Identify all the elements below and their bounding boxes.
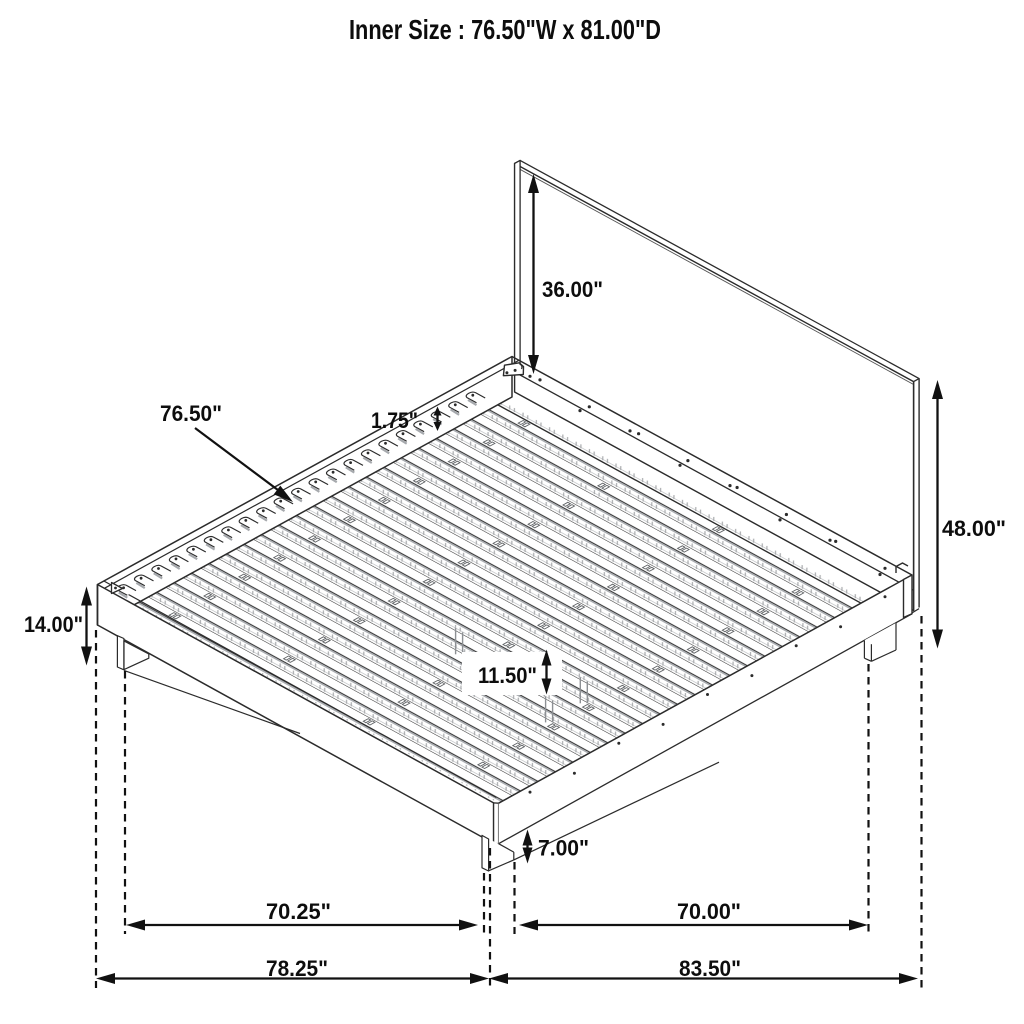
svg-text:83.50": 83.50" [679,956,741,981]
svg-text:78.25": 78.25" [266,956,328,981]
svg-text:70.25": 70.25" [266,899,331,924]
svg-text:Inner Size : 76.50"W x 81.00"D: Inner Size : 76.50"W x 81.00"D [349,14,661,45]
svg-text:48.00": 48.00" [942,516,1006,541]
svg-text:7.00": 7.00" [538,836,589,861]
svg-text:70.00": 70.00" [677,899,741,924]
svg-text:1.75": 1.75" [371,408,418,433]
svg-text:11.50": 11.50" [478,663,537,688]
svg-text:36.00": 36.00" [542,277,603,302]
svg-text:76.50": 76.50" [160,401,222,426]
svg-text:14.00": 14.00" [24,612,83,637]
